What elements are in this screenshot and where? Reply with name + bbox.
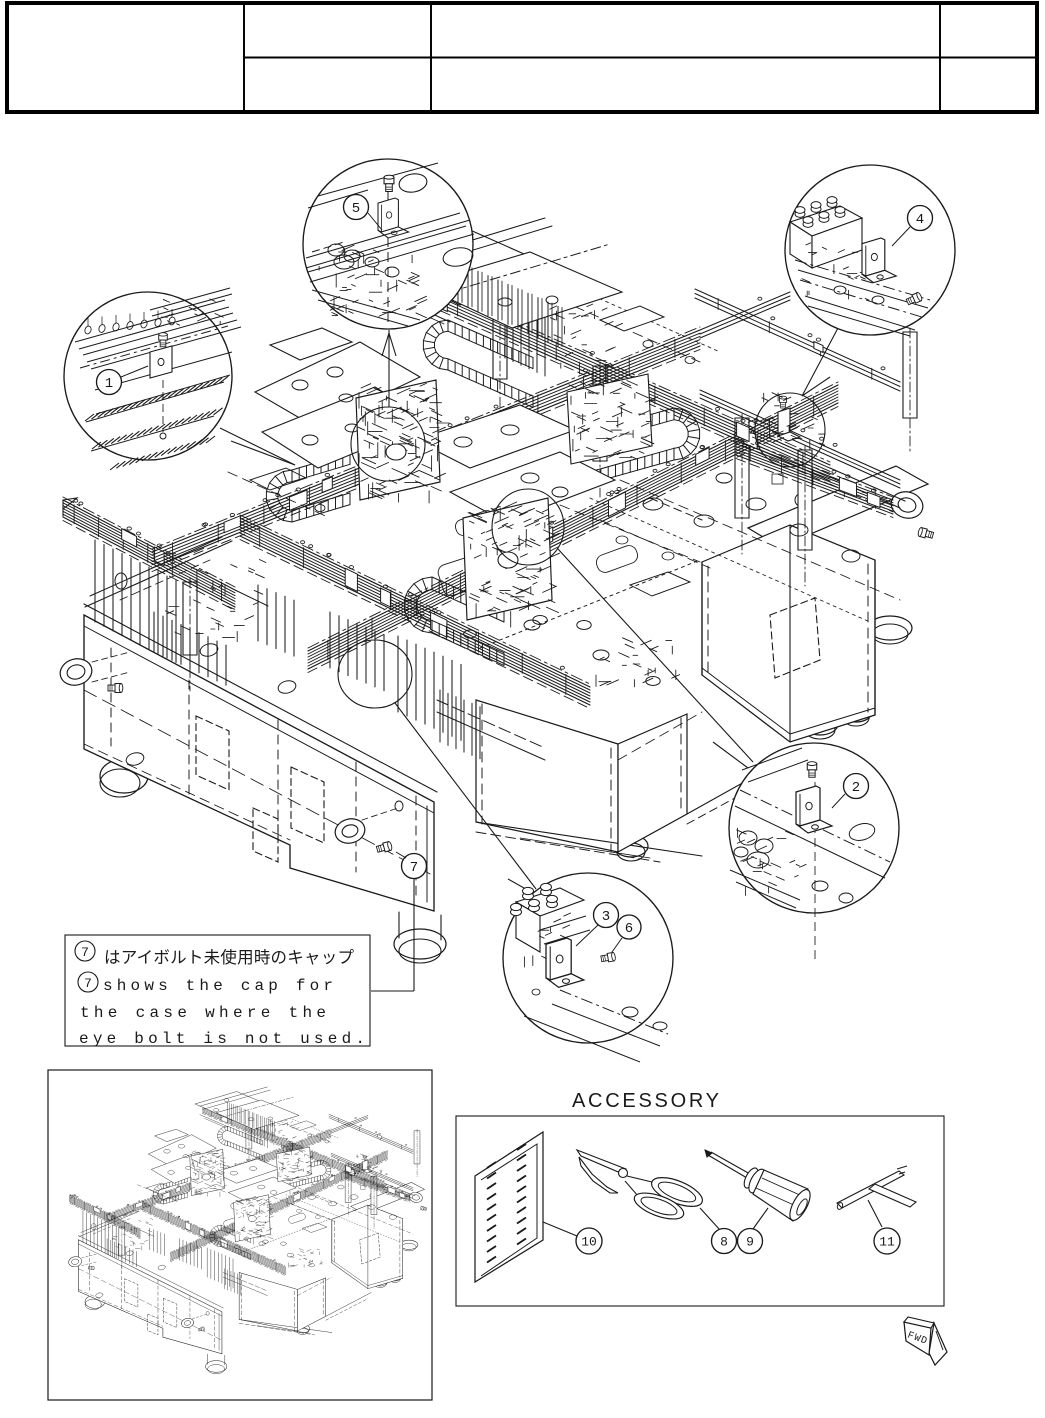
svg-text:9: 9 [746,1235,754,1250]
svg-text:8: 8 [720,1235,728,1250]
svg-text:7: 7 [84,976,92,991]
svg-text:eye bolt is not used.: eye bolt is not used. [79,1030,365,1048]
svg-text:2: 2 [852,780,860,796]
svg-text:7: 7 [410,860,418,876]
svg-text:5: 5 [352,201,360,217]
svg-text:1: 1 [105,376,113,392]
svg-text:7: 7 [81,945,89,960]
svg-text:はアイボルト未使用時のキャップ: はアイボルト未使用時のキャップ [104,948,355,968]
svg-text:6: 6 [625,921,633,937]
svg-text:3: 3 [602,909,610,925]
svg-text:shows the cap for: shows the cap for [103,977,333,995]
svg-text:ACCESSORY: ACCESSORY [572,1090,719,1112]
svg-text:10: 10 [581,1235,597,1250]
svg-text:11: 11 [879,1235,895,1250]
svg-text:4: 4 [916,212,924,228]
